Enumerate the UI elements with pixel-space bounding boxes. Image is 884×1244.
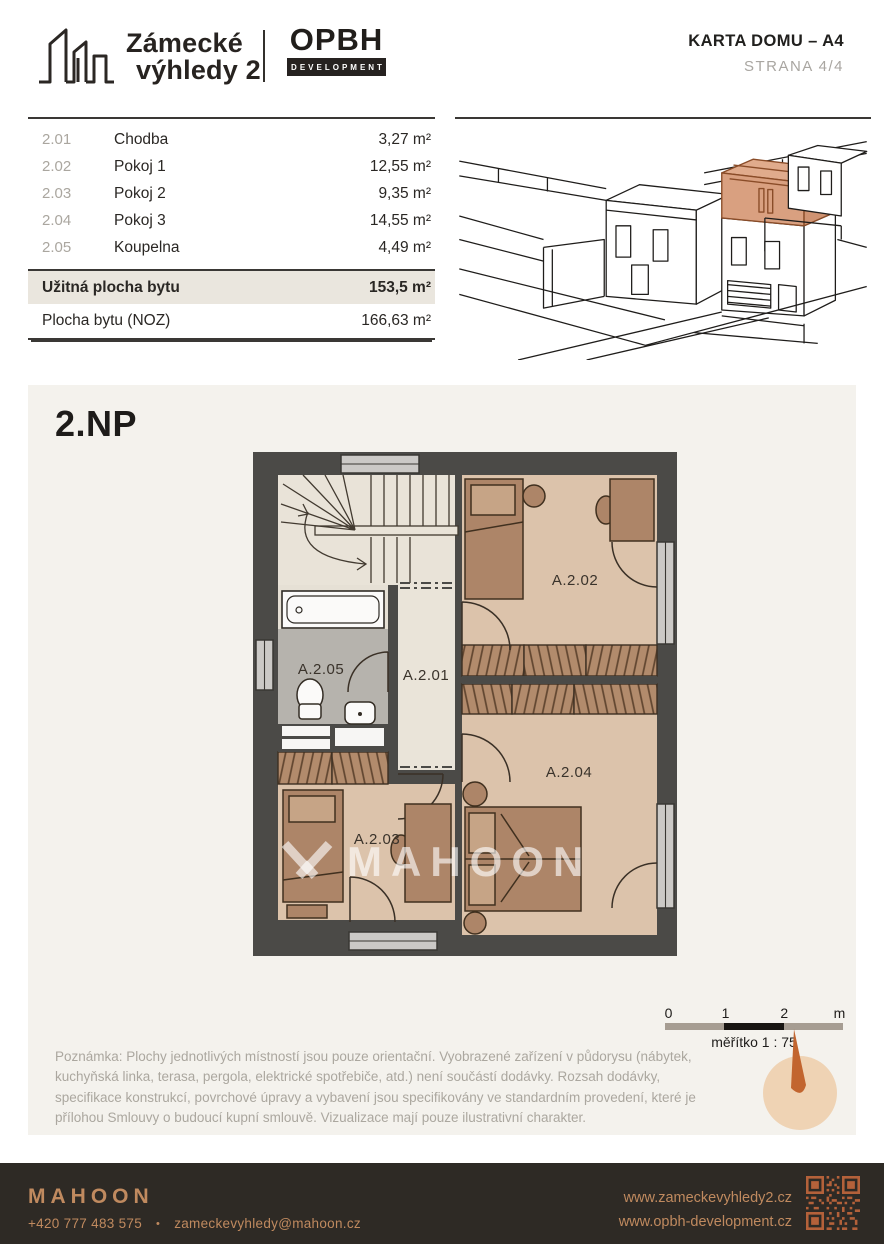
- qr-code: [806, 1176, 860, 1230]
- total-usable-area-row: Užitná plocha bytu 153,5 m²: [28, 269, 435, 304]
- floorplan: A.2.01 A.2.02 A.2.03 A.2.04 A.2.05 MAHOO…: [253, 452, 677, 956]
- room-area: 12,55 m²: [370, 158, 435, 176]
- table-row: 2.02 Pokoj 1 12,55 m²: [28, 153, 435, 180]
- room-label-a201: A.2.01: [403, 667, 449, 684]
- total-label: Užitná plocha bytu: [28, 279, 369, 297]
- room-name: Koupelna: [114, 239, 378, 257]
- document-meta: KARTA DOMU – A4 STRANA 4/4: [688, 32, 844, 75]
- room-code: 2.01: [28, 131, 114, 148]
- scale-tick-1: 1: [722, 1005, 730, 1021]
- partner-logo: OPBH DEVELOPMENT: [287, 24, 386, 76]
- total-value: 153,5 m²: [369, 279, 435, 297]
- room-name: Pokoj 2: [114, 185, 378, 203]
- axonometric-drawing: [455, 122, 871, 360]
- total-label: Plocha bytu (NOZ): [28, 312, 361, 330]
- footer-website-secondary[interactable]: www.opbh-development.cz: [619, 1211, 792, 1235]
- partner-name: OPBH: [287, 24, 386, 55]
- room-label-a203: A.2.03: [354, 831, 400, 848]
- room-area: 3,27 m²: [378, 131, 435, 149]
- room-code: 2.05: [28, 239, 114, 256]
- footer: MAHOON +420 777 483 575 • zameckevyhledy…: [0, 1163, 884, 1244]
- house-card-page: Zámecké výhledy 2 OPBH DEVELOPMENT KARTA…: [0, 0, 884, 1244]
- partner-subtitle: DEVELOPMENT: [287, 58, 386, 76]
- table-row: 2.04 Pokoj 3 14,55 m²: [28, 207, 435, 234]
- footer-phone[interactable]: +420 777 483 575: [28, 1216, 142, 1231]
- page-indicator: STRANA 4/4: [688, 58, 844, 75]
- scale-unit: m: [834, 1005, 846, 1021]
- room-area: 4,49 m²: [378, 239, 435, 257]
- room-code: 2.04: [28, 212, 114, 229]
- table-row: 2.01 Chodba 3,27 m²: [28, 126, 435, 153]
- bathroom-vanity: [278, 724, 388, 752]
- total-noz-area-row: Plocha bytu (NOZ) 166,63 m²: [28, 304, 435, 340]
- footer-email[interactable]: zameckevyhledy@mahoon.cz: [174, 1216, 361, 1231]
- bathtub: [282, 591, 384, 628]
- north-compass-icon: [760, 1025, 840, 1135]
- footer-website-primary[interactable]: www.zameckevyhledy2.cz: [619, 1187, 792, 1211]
- brand-line1: Zámecké: [126, 30, 261, 57]
- header-divider: [263, 30, 265, 82]
- room-name: Chodba: [114, 131, 378, 149]
- document-title: KARTA DOMU – A4: [688, 32, 844, 51]
- room-area: 14,55 m²: [370, 212, 435, 230]
- room-label-a202: A.2.02: [552, 572, 598, 589]
- total-value: 166,63 m²: [361, 312, 435, 330]
- room-label-a204: A.2.04: [546, 764, 592, 781]
- scale-tick-0: 0: [665, 1005, 673, 1021]
- room-area-table: 2.01 Chodba 3,27 m² 2.02 Pokoj 1 12,55 m…: [28, 117, 435, 340]
- sink: [345, 702, 375, 724]
- footer-contact-block: MAHOON +420 777 483 575 • zameckevyhledy…: [28, 1185, 361, 1231]
- floor-label: 2.NP: [55, 403, 137, 445]
- brand-line2: výhledy 2: [126, 57, 261, 84]
- room-name: Pokoj 1: [114, 158, 370, 176]
- disclaimer-note: Poznámka: Plochy jednotlivých místností …: [55, 1047, 700, 1128]
- brand-name: Zámecké výhledy 2: [126, 30, 261, 84]
- room-name: Pokoj 3: [114, 212, 370, 230]
- scale-tick-2: 2: [780, 1005, 788, 1021]
- footer-brand-logo: MAHOON: [28, 1185, 361, 1209]
- footer-bullet: •: [156, 1218, 160, 1230]
- totals-block: Užitná plocha bytu 153,5 m² Plocha bytu …: [28, 269, 435, 340]
- floorplan-section: 2.NP: [28, 385, 856, 1135]
- building-location-figure: [455, 117, 871, 365]
- room-code: 2.02: [28, 158, 114, 175]
- footer-websites: www.zameckevyhledy2.cz www.opbh-developm…: [619, 1187, 792, 1235]
- table-row: 2.03 Pokoj 2 9,35 m²: [28, 180, 435, 207]
- table-row: 2.05 Koupelna 4,49 m²: [28, 234, 435, 261]
- room-area: 9,35 m²: [378, 185, 435, 203]
- room-code: 2.03: [28, 185, 114, 202]
- toilet: [297, 679, 323, 719]
- floorplan-drawing: A.2.01 A.2.02 A.2.03 A.2.04 A.2.05: [253, 452, 677, 956]
- room-label-a205: A.2.05: [298, 661, 344, 678]
- brand-buildings-icon: [36, 26, 116, 84]
